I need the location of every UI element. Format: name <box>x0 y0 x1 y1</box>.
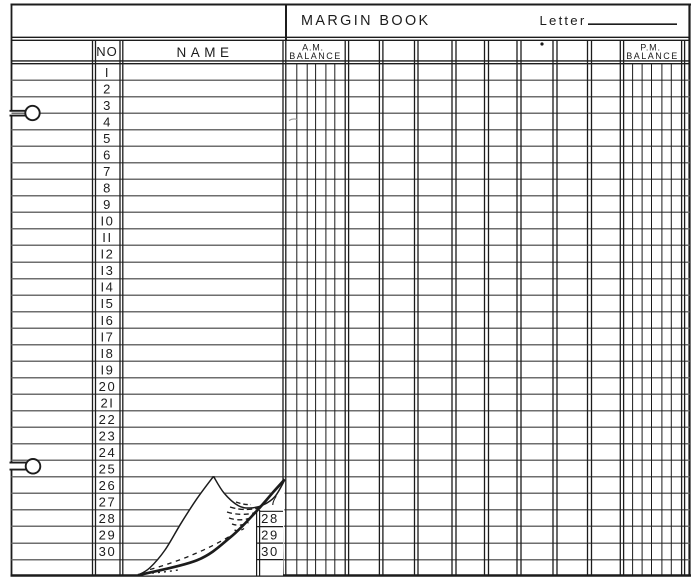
svg-text:29: 29 <box>261 527 279 542</box>
svg-text:28: 28 <box>99 511 117 526</box>
svg-text:24: 24 <box>99 445 117 460</box>
svg-text:BALANCE: BALANCE <box>626 51 679 61</box>
svg-text:MARGIN BOOK: MARGIN BOOK <box>301 13 431 29</box>
svg-text:BALANCE: BALANCE <box>289 51 342 61</box>
svg-text:II: II <box>102 230 112 245</box>
svg-text:I9: I9 <box>100 362 114 377</box>
svg-text:29: 29 <box>99 528 117 543</box>
svg-text:2I: 2I <box>100 395 114 410</box>
svg-text:I5: I5 <box>100 296 114 311</box>
svg-text:23: 23 <box>99 429 117 444</box>
svg-text:5: 5 <box>103 131 112 146</box>
svg-text:6: 6 <box>103 147 112 162</box>
svg-text:28: 28 <box>261 511 279 526</box>
svg-text:30: 30 <box>99 544 117 559</box>
svg-text:I3: I3 <box>100 263 114 278</box>
svg-text:7: 7 <box>103 164 112 179</box>
svg-text:I7: I7 <box>100 329 114 344</box>
svg-text:I2: I2 <box>100 247 114 262</box>
svg-text:4: 4 <box>103 114 112 129</box>
svg-text:9: 9 <box>103 197 112 212</box>
svg-text:25: 25 <box>99 462 117 477</box>
svg-text:I: I <box>105 65 110 80</box>
svg-text:22: 22 <box>99 412 117 427</box>
svg-text:8: 8 <box>103 181 112 196</box>
svg-text:I0: I0 <box>100 214 114 229</box>
svg-text:26: 26 <box>99 478 117 493</box>
svg-text:NO: NO <box>96 44 118 59</box>
svg-text:I6: I6 <box>100 313 114 328</box>
svg-text:27: 27 <box>99 495 117 510</box>
svg-text:30: 30 <box>261 544 279 559</box>
svg-text:20: 20 <box>99 379 117 394</box>
svg-text:I8: I8 <box>100 346 114 361</box>
svg-text:I4: I4 <box>100 280 114 295</box>
svg-text:NAME: NAME <box>176 45 233 60</box>
svg-text:2: 2 <box>103 81 112 96</box>
svg-text:3: 3 <box>103 98 112 113</box>
svg-text:Letter: Letter <box>540 13 587 28</box>
